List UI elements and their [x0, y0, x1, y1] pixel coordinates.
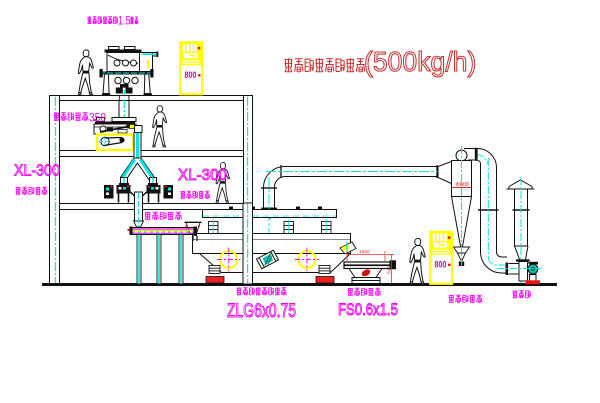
svg-text:1500: 1500 [359, 249, 370, 255]
svg-text:XL-300: XL-300 [178, 167, 227, 184]
svg-text:350: 350 [89, 112, 106, 125]
svg-text:1.5: 1.5 [118, 14, 131, 28]
svg-text:545: 545 [387, 266, 393, 274]
svg-text:(500kg/h): (500kg/h) [364, 45, 476, 77]
svg-text:XL-300: XL-300 [14, 162, 60, 180]
svg-text:FS0.6x1.5: FS0.6x1.5 [338, 300, 398, 319]
svg-text:ZLG6x0.75: ZLG6x0.75 [227, 300, 296, 322]
